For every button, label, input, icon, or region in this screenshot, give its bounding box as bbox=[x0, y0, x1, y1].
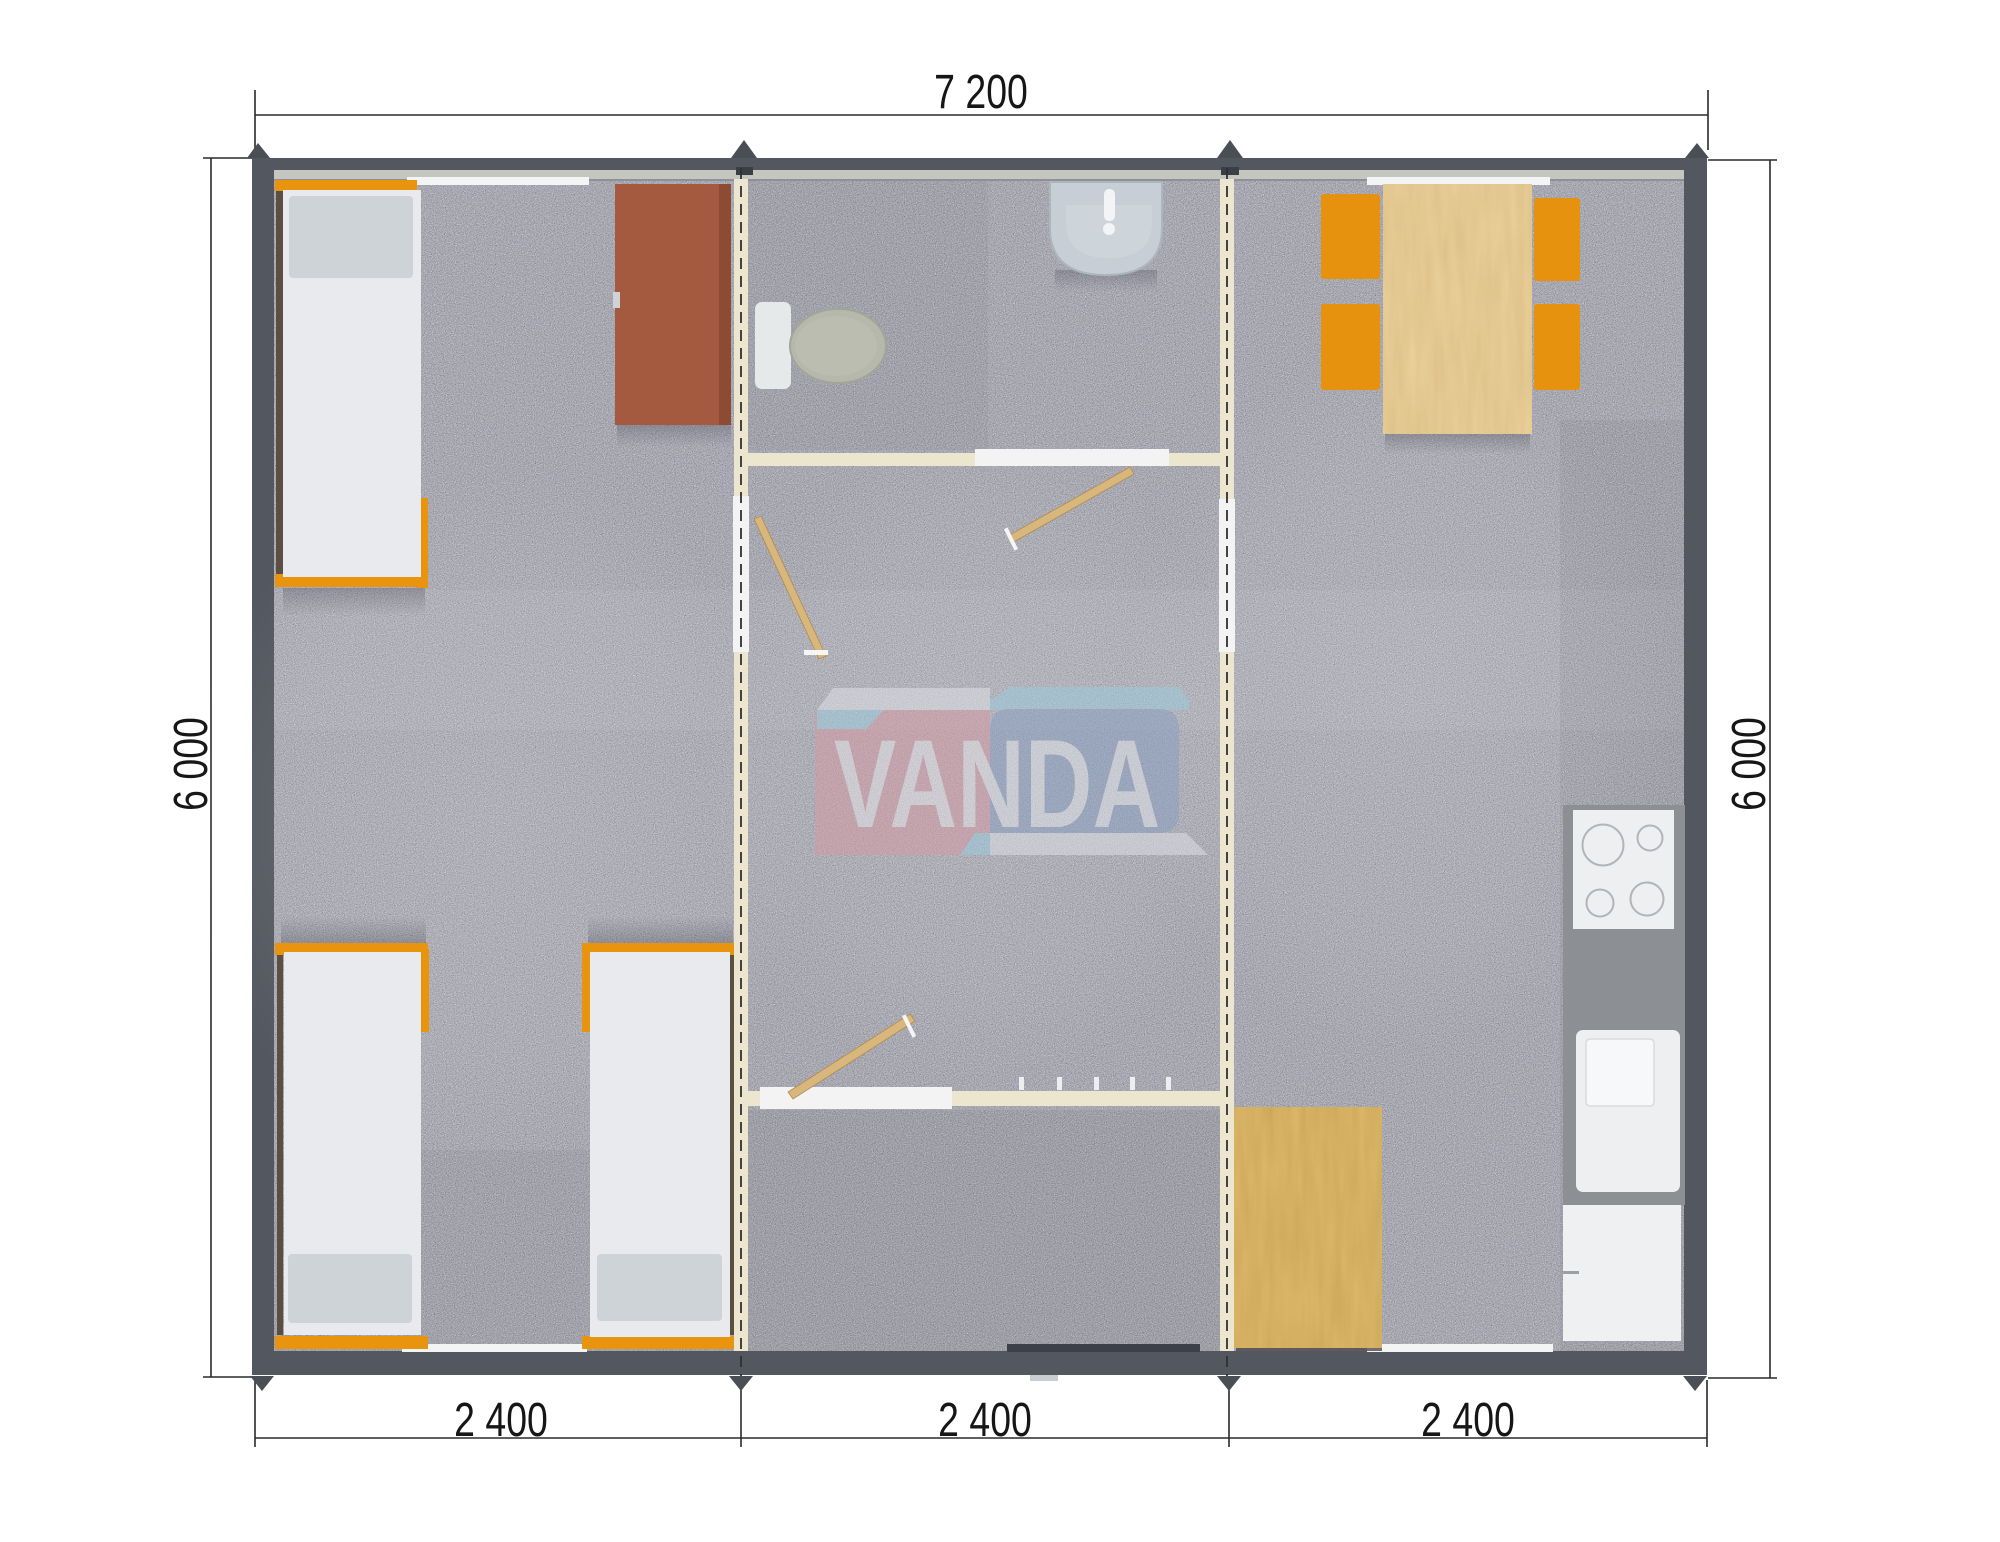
svg-text:VANDA: VANDA bbox=[834, 715, 1160, 854]
svg-text:2 400: 2 400 bbox=[454, 1394, 548, 1448]
svg-text:2 400: 2 400 bbox=[1421, 1394, 1515, 1448]
svg-text:6 000: 6 000 bbox=[1723, 717, 1777, 811]
svg-text:2 400: 2 400 bbox=[938, 1394, 1032, 1448]
svg-text:7 200: 7 200 bbox=[934, 66, 1028, 120]
